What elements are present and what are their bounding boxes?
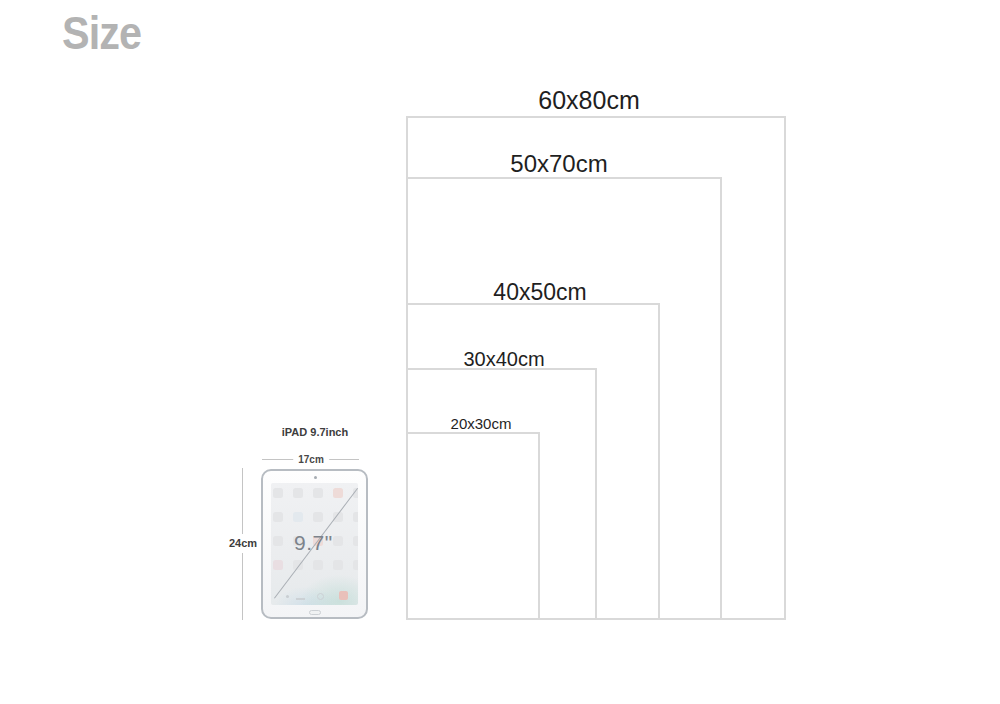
- size-label-20x30cm: 20x30cm: [451, 415, 512, 432]
- app-icon: [273, 560, 283, 570]
- size-label-50x70cm: 50x70cm: [510, 150, 607, 178]
- ipad-height-label: 24cm: [228, 534, 258, 553]
- app-icon: [273, 488, 283, 498]
- app-icon: [313, 560, 323, 570]
- ipad-screen: 9.7": [271, 483, 358, 605]
- size-label-40x50cm: 40x50cm: [493, 279, 586, 305]
- ipad-name-label: iPAD 9.7inch: [282, 426, 348, 438]
- size-comparison-diagram: Size 60x80cm50x70cm40x50cm30x40cm20x30cm…: [0, 0, 1000, 704]
- dock-app-icon: [339, 591, 348, 600]
- dock-dot-icon: [286, 595, 289, 598]
- app-icon: [293, 488, 303, 498]
- size-rect-20x30cm: [406, 432, 540, 620]
- dock-dash-icon: [296, 598, 305, 600]
- app-icon: [353, 536, 358, 546]
- app-icon: [353, 512, 358, 522]
- page-title: Size: [62, 9, 141, 56]
- app-icon: [333, 488, 343, 498]
- app-icon: [333, 536, 343, 546]
- app-icon: [273, 512, 283, 522]
- ipad-home-button: [309, 610, 321, 615]
- app-icon: [293, 512, 303, 522]
- app-icon: [273, 536, 283, 546]
- app-icon: [353, 560, 358, 570]
- app-icon: [313, 488, 323, 498]
- size-label-60x80cm: 60x80cm: [538, 86, 639, 115]
- size-label-30x40cm: 30x40cm: [463, 348, 544, 371]
- ipad-body: 9.7": [261, 469, 368, 619]
- app-icon: [333, 560, 343, 570]
- app-icon-grid: [273, 488, 358, 570]
- camera-dot-icon: [314, 476, 317, 479]
- app-icon: [313, 512, 323, 522]
- ipad-diagonal-label: 9.7": [294, 532, 333, 553]
- ipad-width-label: 17cm: [293, 453, 329, 466]
- dock-circle-icon: [317, 593, 324, 600]
